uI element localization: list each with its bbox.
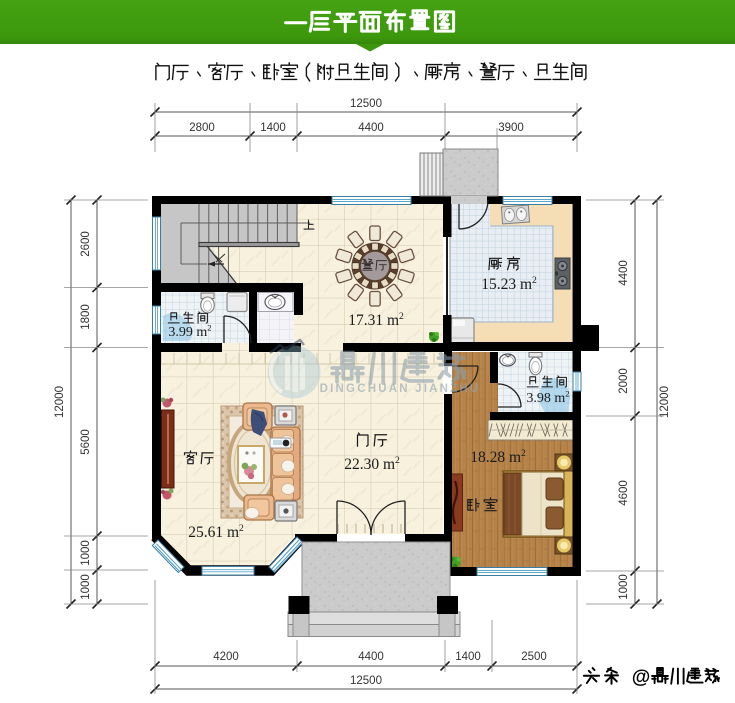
svg-text:25.61 m2: 25.61 m2: [188, 523, 244, 541]
svg-text:4200: 4200: [213, 651, 239, 663]
svg-text:4600: 4600: [618, 480, 630, 506]
svg-text:@: @: [632, 667, 651, 688]
svg-text:12000: 12000: [54, 386, 66, 418]
svg-text:1000: 1000: [618, 574, 630, 600]
svg-text:4400: 4400: [618, 260, 630, 286]
svg-text:4400: 4400: [358, 122, 384, 134]
svg-text:1000: 1000: [80, 574, 92, 600]
svg-text:DINGCHUAN JIANZHU: DINGCHUAN JIANZHU: [320, 383, 481, 395]
svg-text:12000: 12000: [659, 386, 671, 418]
svg-text:1800: 1800: [80, 304, 92, 330]
svg-text:12500: 12500: [350, 675, 382, 687]
svg-text:3.98 m2: 3.98 m2: [526, 389, 569, 406]
svg-text:18.28 m2: 18.28 m2: [470, 448, 526, 466]
svg-text:17.31 m2: 17.31 m2: [348, 311, 404, 329]
svg-text:22.30 m2: 22.30 m2: [344, 455, 400, 473]
svg-text:2500: 2500: [521, 651, 547, 663]
svg-text:1400: 1400: [455, 651, 481, 663]
svg-text:3900: 3900: [498, 122, 524, 134]
svg-text:1400: 1400: [260, 122, 286, 134]
svg-text:5600: 5600: [80, 429, 92, 455]
svg-text:2000: 2000: [618, 368, 630, 394]
svg-text:2600: 2600: [80, 231, 92, 257]
svg-text:12500: 12500: [350, 98, 382, 110]
svg-text:3.99 m2: 3.99 m2: [168, 323, 211, 340]
svg-text:4400: 4400: [358, 651, 384, 663]
svg-text:1000: 1000: [80, 540, 92, 566]
svg-text:15.23 m2: 15.23 m2: [481, 275, 537, 293]
svg-text:2800: 2800: [189, 122, 215, 134]
